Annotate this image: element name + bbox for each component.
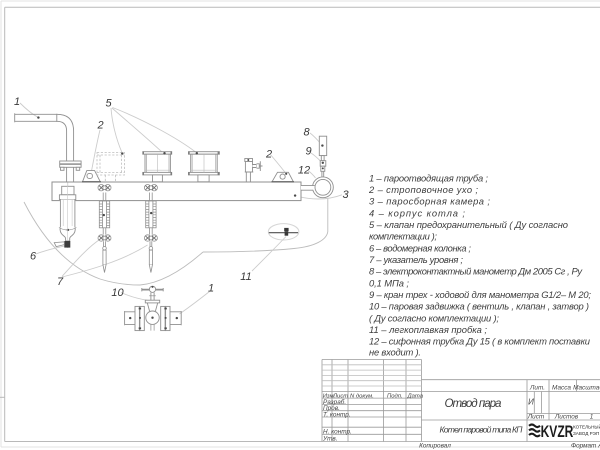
svg-text:7: 7 <box>57 276 64 288</box>
svg-text:2: 2 <box>265 149 272 161</box>
svg-text:1: 1 <box>590 413 594 420</box>
svg-text:11 – легкоплавкая пробка ;: 11 – легкоплавкая пробка ; <box>369 324 487 335</box>
svg-text:2: 2 <box>96 120 103 132</box>
svg-text:N докум.: N докум. <box>350 393 374 399</box>
svg-text:Подп.: Подп. <box>387 393 403 399</box>
svg-text:11: 11 <box>240 271 251 283</box>
svg-text:3: 3 <box>342 189 349 201</box>
svg-text:10 – паровая задвижка ( вент: 10 – паровая задвижка ( вентиль , клапан… <box>369 301 589 312</box>
svg-text:Копировал: Копировал <box>419 443 451 450</box>
svg-text:Масштаб: Масштаб <box>573 383 600 391</box>
svg-text:Дата: Дата <box>407 393 424 399</box>
svg-text:Котел паровой типа КП: Котел паровой типа КП <box>440 425 524 435</box>
svg-text:( Ду согласно комплектации );: ( Ду согласно комплектации ); <box>369 312 499 323</box>
svg-text:Отвод пара: Отвод пара <box>445 397 503 410</box>
svg-text:6: 6 <box>30 251 37 263</box>
svg-text:Листов: Листов <box>554 413 579 420</box>
svg-text:Лит.: Лит. <box>529 384 545 391</box>
svg-text:5: 5 <box>105 98 112 110</box>
svg-text:1 – пароотводящая труба ;: 1 – пароотводящая труба ; <box>369 172 488 183</box>
svg-text:10: 10 <box>111 287 124 299</box>
svg-text:KVZR: KVZR <box>541 423 574 441</box>
svg-text:Формат А3: Формат А3 <box>571 443 600 450</box>
svg-text:4 – корпус котла ;: 4 – корпус котла ; <box>369 207 465 218</box>
svg-text:КОТЕЛЬНЫЙ: КОТЕЛЬНЫЙ <box>573 423 600 430</box>
svg-text:2 – строповочное ухо ;: 2 – строповочное ухо ; <box>368 184 478 195</box>
svg-text:0,1 МПа ;: 0,1 МПа ; <box>369 277 409 288</box>
svg-text:7 – указатель уровня ;: 7 – указатель уровня ; <box>369 254 463 265</box>
svg-text:Утв.: Утв. <box>322 436 338 443</box>
svg-text:комплектации );: комплектации ); <box>369 231 437 242</box>
svg-text:1: 1 <box>208 283 214 295</box>
svg-text:ЗАВОД РЭП: ЗАВОД РЭП <box>573 431 599 436</box>
svg-text:5 – клапан предохранительный: 5 – клапан предохранительный ( Ду соглас… <box>369 219 568 230</box>
svg-text:12 – сифонная трубка Ду 15 (: 12 – сифонная трубка Ду 15 ( в комплект … <box>369 336 591 347</box>
svg-text:12: 12 <box>298 165 310 177</box>
svg-text:Т. контр.: Т. контр. <box>323 412 351 419</box>
svg-text:9: 9 <box>305 146 311 158</box>
svg-text:3 – паросборная камера ;: 3 – паросборная камера ; <box>369 196 490 207</box>
svg-text:8: 8 <box>303 127 310 139</box>
svg-text:8 – электроконтактный манометр: 8 – электроконтактный манометр Дм 2005 С… <box>369 266 583 277</box>
svg-text:не входит ).: не входит ). <box>369 347 421 358</box>
svg-text:9 – кран трех - ходовой для м: 9 – кран трех - ходовой для манометра G1… <box>369 289 591 300</box>
svg-text:6 – водомерная колонка ;: 6 – водомерная колонка ; <box>369 242 471 253</box>
svg-text:1: 1 <box>14 96 20 108</box>
svg-text:Лист: Лист <box>527 413 545 420</box>
svg-text:Н. контр.: Н. контр. <box>323 429 352 436</box>
svg-text:Масса: Масса <box>552 384 571 391</box>
svg-text:И: И <box>528 398 534 407</box>
